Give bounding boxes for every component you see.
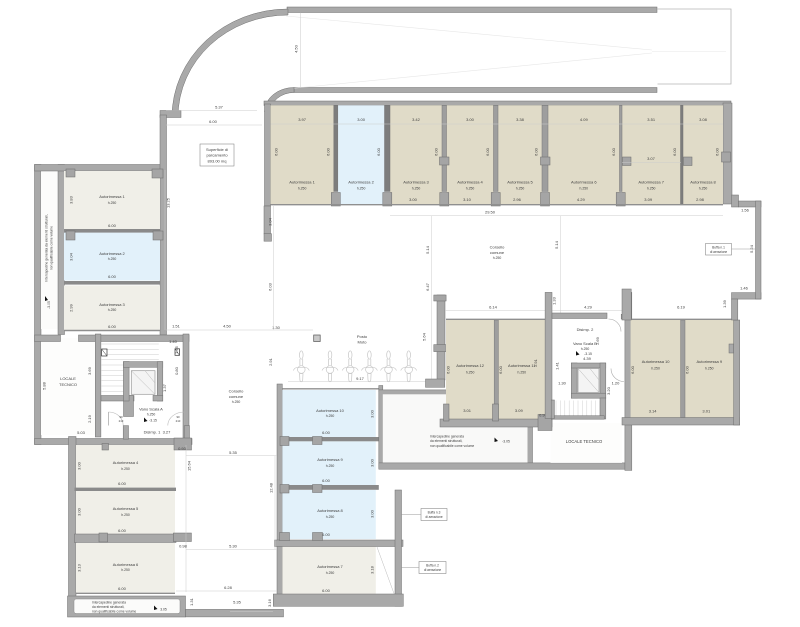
svg-text:h.250: h.250 (121, 467, 130, 471)
svg-text:Autorimessa 12: Autorimessa 12 (456, 363, 485, 368)
svg-text:Superficie di: Superficie di (206, 147, 228, 152)
svg-text:1.41: 1.41 (555, 361, 560, 370)
svg-text:h.250: h.250 (651, 367, 660, 371)
svg-text:6.00: 6.00 (611, 147, 616, 156)
svg-text:Autorimessa 3: Autorimessa 3 (403, 180, 429, 185)
svg-text:h.250: h.250 (580, 187, 589, 191)
svg-text:3.01: 3.01 (463, 408, 472, 413)
svg-text:0.93: 0.93 (178, 446, 187, 451)
svg-text:comune: comune (490, 250, 505, 255)
svg-text:1.45: 1.45 (174, 345, 179, 354)
svg-text:5.35: 5.35 (233, 600, 242, 605)
svg-text:4.39: 4.39 (583, 356, 592, 361)
svg-text:Autorimessa 4: Autorimessa 4 (113, 460, 139, 465)
svg-text:3.00: 3.00 (77, 507, 82, 516)
svg-text:3.51: 3.51 (647, 117, 656, 122)
svg-text:h.250: h.250 (326, 571, 335, 575)
svg-text:Autorimessa 4: Autorimessa 4 (457, 180, 483, 185)
svg-text:3.08: 3.08 (699, 117, 708, 122)
svg-text:3.83: 3.83 (69, 195, 74, 204)
svg-text:3.69: 3.69 (87, 366, 92, 375)
svg-text:5.24: 5.24 (749, 244, 754, 253)
svg-text:h.250: h.250 (705, 367, 714, 371)
svg-text:6.00: 6.00 (108, 324, 117, 329)
svg-text:h.250: h.250 (518, 371, 527, 375)
svg-text:Autorimessa 6: Autorimessa 6 (113, 562, 139, 567)
svg-text:2.98: 2.98 (696, 197, 705, 202)
svg-text:1.20: 1.20 (612, 381, 621, 386)
svg-text:h.250: h.250 (147, 413, 156, 417)
svg-text:3.27: 3.27 (163, 430, 172, 435)
svg-text:di aerazione: di aerazione (425, 515, 443, 519)
svg-text:Autorimessa 7: Autorimessa 7 (317, 564, 343, 569)
svg-text:6.00: 6.00 (672, 147, 677, 156)
svg-text:Autorimessa 9: Autorimessa 9 (317, 457, 343, 462)
svg-text:LOCALE: LOCALE (60, 376, 76, 381)
svg-text:Intercapedine generata: Intercapedine generata (92, 601, 126, 605)
svg-text:5.35: 5.35 (229, 450, 238, 455)
svg-text:0.80: 0.80 (174, 366, 179, 375)
svg-text:5.30: 5.30 (229, 544, 238, 549)
svg-text:210: 210 (119, 419, 124, 423)
svg-text:3.14: 3.14 (649, 409, 658, 414)
svg-text:Corsello: Corsello (229, 389, 244, 394)
svg-text:Corsello: Corsello (490, 245, 505, 250)
svg-text:h.250: h.250 (326, 414, 335, 418)
svg-text:6.00: 6.00 (118, 586, 127, 591)
svg-text:6.00: 6.00 (322, 430, 331, 435)
svg-text:Autorimessa 2: Autorimessa 2 (99, 251, 125, 256)
svg-text:h.250: h.250 (493, 256, 502, 260)
svg-text:Autorimessa 2: Autorimessa 2 (348, 180, 374, 185)
svg-text:1.33: 1.33 (552, 296, 557, 305)
svg-text:0.98: 0.98 (179, 544, 188, 549)
svg-text:6.00: 6.00 (108, 223, 117, 228)
svg-text:Moto: Moto (358, 340, 368, 345)
svg-text:h.250: h.250 (357, 187, 366, 191)
svg-text:parcamento: parcamento (206, 153, 228, 158)
svg-text:3.01: 3.01 (702, 409, 711, 414)
svg-text:2.99: 2.99 (69, 303, 74, 312)
svg-text:3.05: 3.05 (160, 608, 167, 612)
svg-text:1.31: 1.31 (189, 597, 194, 606)
svg-text:h.250: h.250 (108, 308, 117, 312)
svg-text:6.00: 6.00 (446, 365, 451, 374)
svg-text:3.09: 3.09 (644, 197, 653, 202)
svg-text:h.250: h.250 (326, 515, 335, 519)
svg-text:3.00: 3.00 (370, 409, 375, 418)
svg-text:h.250: h.250 (108, 257, 117, 261)
svg-text:1.39: 1.39 (722, 299, 727, 308)
svg-text:2.91: 2.91 (268, 357, 273, 366)
svg-text:h.250: h.250 (647, 187, 656, 191)
svg-text:4.29: 4.29 (577, 197, 586, 202)
svg-text:4.29: 4.29 (584, 305, 593, 310)
svg-text:-3.15: -3.15 (149, 419, 157, 423)
svg-text:TECNICO: TECNICO (59, 382, 77, 387)
svg-text:Disimp. 2: Disimp. 2 (577, 327, 594, 332)
svg-text:h.250: h.250 (121, 568, 130, 572)
svg-text:Autorimessa 5: Autorimessa 5 (113, 506, 139, 511)
svg-text:Autorimessa 9: Autorimessa 9 (697, 359, 723, 364)
svg-text:h.250: h.250 (232, 400, 241, 404)
svg-text:1.40: 1.40 (169, 339, 178, 344)
svg-text:6.14: 6.14 (489, 305, 498, 310)
svg-text:Buffa n.2: Buffa n.2 (426, 563, 439, 567)
svg-text:5.03: 5.03 (77, 430, 86, 435)
svg-text:12.48: 12.48 (269, 482, 274, 493)
svg-text:5.14: 5.14 (425, 245, 430, 254)
svg-text:5.64: 5.64 (422, 332, 427, 341)
svg-text:h.250: h.250 (581, 347, 590, 351)
svg-text:h.250: h.250 (108, 201, 117, 205)
svg-text:6.00: 6.00 (630, 365, 635, 374)
svg-text:6.00: 6.00 (325, 147, 330, 156)
svg-text:comune: comune (229, 394, 244, 399)
svg-text:1.46: 1.46 (740, 286, 749, 291)
svg-text:Buffa n.3: Buffa n.3 (428, 510, 441, 514)
svg-text:-3.05: -3.05 (47, 301, 51, 309)
svg-text:Posto: Posto (357, 334, 368, 339)
svg-text:15.64: 15.64 (187, 460, 192, 471)
svg-text:6.47: 6.47 (425, 282, 430, 291)
svg-text:Autorimessa 8: Autorimessa 8 (690, 180, 716, 185)
svg-text:3.04: 3.04 (69, 252, 74, 261)
svg-text:3.18: 3.18 (370, 565, 375, 574)
svg-text:6.00: 6.00 (322, 588, 331, 593)
svg-text:6.00: 6.00 (534, 147, 539, 156)
svg-text:6.00: 6.00 (322, 532, 331, 537)
svg-text:h.250: h.250 (412, 187, 421, 191)
svg-text:3.00: 3.00 (370, 458, 375, 467)
svg-text:13.25: 13.25 (166, 197, 171, 208)
svg-text:5.37: 5.37 (215, 105, 224, 110)
svg-text:Intercapedine generata: Intercapedine generata (430, 435, 464, 439)
svg-text:Autorimessa 10: Autorimessa 10 (316, 408, 345, 413)
svg-text:Buffa n.1: Buffa n.1 (712, 245, 725, 249)
svg-text:6.00: 6.00 (434, 147, 439, 156)
svg-text:6.00: 6.00 (715, 147, 720, 156)
svg-text:non qualificabile come volume: non qualificabile come volume (430, 444, 474, 448)
svg-text:2.69: 2.69 (595, 336, 600, 345)
svg-text:6.00: 6.00 (209, 119, 218, 124)
svg-text:893.00 mq: 893.00 mq (208, 159, 227, 164)
svg-text:Autorimessa 8: Autorimessa 8 (317, 508, 343, 513)
svg-text:1.37: 1.37 (162, 383, 167, 392)
svg-text:h.250: h.250 (326, 464, 335, 468)
svg-text:2.19: 2.19 (87, 414, 92, 423)
svg-text:1.30: 1.30 (558, 381, 567, 386)
svg-text:h.250: h.250 (466, 371, 475, 375)
svg-text:3.00: 3.00 (466, 117, 475, 122)
svg-text:Autorimessa 5: Autorimessa 5 (507, 180, 533, 185)
svg-text:3.10: 3.10 (463, 197, 472, 202)
svg-text:Autorimessa 10: Autorimessa 10 (642, 359, 671, 364)
svg-text:6.19: 6.19 (677, 305, 686, 310)
svg-text:6.00: 6.00 (685, 365, 690, 374)
svg-text:Autorimessa 3: Autorimessa 3 (99, 302, 125, 307)
svg-text:3.13: 3.13 (77, 563, 82, 572)
svg-text:Autorimessa 1: Autorimessa 1 (289, 180, 315, 185)
svg-text:6.00: 6.00 (376, 147, 381, 156)
svg-text:3.07: 3.07 (647, 156, 656, 161)
svg-text:3.16: 3.16 (267, 598, 272, 607)
svg-text:3.04: 3.04 (268, 217, 273, 226)
svg-text:9.17: 9.17 (356, 376, 365, 381)
svg-text:210: 210 (176, 419, 181, 423)
svg-text:29.50: 29.50 (485, 210, 496, 215)
svg-text:Vano Scala A: Vano Scala A (139, 407, 163, 412)
svg-text:1.56: 1.56 (741, 208, 750, 213)
svg-text:4.09: 4.09 (580, 117, 589, 122)
svg-text:Intercapedine generata da elem: Intercapedine generata da elementi strut… (45, 214, 49, 281)
svg-text:6.00: 6.00 (108, 274, 117, 279)
svg-text:Autorimessa 1: Autorimessa 1 (99, 194, 125, 199)
svg-text:da elementi strutturali,: da elementi strutturali, (430, 439, 463, 443)
svg-text:6.00: 6.00 (274, 147, 279, 156)
svg-text:6.03: 6.03 (268, 282, 273, 291)
svg-text:5.88: 5.88 (42, 381, 47, 390)
svg-text:6.00: 6.00 (485, 147, 490, 156)
svg-text:3.20: 3.20 (606, 386, 611, 395)
svg-text:Disimp. 1: Disimp. 1 (144, 430, 161, 435)
svg-text:6.00: 6.00 (322, 478, 331, 483)
svg-text:3.00: 3.00 (357, 117, 366, 122)
svg-text:3.38: 3.38 (516, 117, 525, 122)
svg-text:2.91: 2.91 (533, 358, 538, 367)
svg-text:-3.05: -3.05 (502, 440, 510, 444)
svg-text:Autorimessa 7: Autorimessa 7 (638, 180, 664, 185)
svg-text:h.250: h.250 (516, 187, 525, 191)
svg-text:h.250: h.250 (466, 187, 475, 191)
svg-text:6.28: 6.28 (224, 585, 233, 590)
svg-text:di aerazione: di aerazione (710, 250, 728, 254)
svg-text:Vano Scala B: Vano Scala B (573, 341, 597, 346)
svg-text:3.00: 3.00 (370, 509, 375, 518)
svg-text:4.50: 4.50 (294, 44, 299, 53)
svg-text:h.250: h.250 (298, 187, 307, 191)
svg-text:1.51: 1.51 (172, 324, 181, 329)
svg-text:6.00: 6.00 (118, 481, 127, 486)
svg-text:3.09: 3.09 (515, 408, 524, 413)
svg-text:non qualificabile come volume: non qualificabile come volume (50, 226, 54, 270)
svg-text:h.250: h.250 (699, 187, 708, 191)
svg-text:Autorimessa 6: Autorimessa 6 (571, 180, 597, 185)
svg-text:3.00: 3.00 (77, 461, 82, 470)
svg-text:2.96: 2.96 (513, 197, 522, 202)
svg-text:LOCALE TECNICO: LOCALE TECNICO (566, 439, 603, 444)
svg-text:5.14: 5.14 (554, 240, 559, 249)
svg-text:3.00: 3.00 (409, 197, 418, 202)
svg-text:3.97: 3.97 (298, 117, 307, 122)
svg-text:h.250: h.250 (121, 513, 130, 517)
svg-text:4.50: 4.50 (223, 324, 232, 329)
svg-text:di aerazione: di aerazione (424, 568, 442, 572)
svg-text:non qualificabile come volume: non qualificabile come volume (92, 610, 136, 614)
svg-text:6.00: 6.00 (118, 528, 127, 533)
svg-text:da elementi strutturali,: da elementi strutturali, (92, 605, 125, 609)
svg-text:3.42: 3.42 (412, 117, 421, 122)
